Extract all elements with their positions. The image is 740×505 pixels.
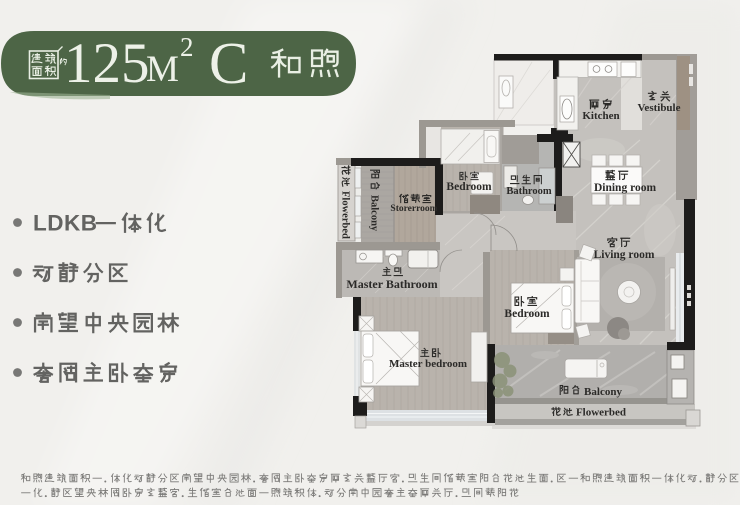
svg-text:Flowerbed: Flowerbed <box>340 191 351 239</box>
svg-text:Living room: Living room <box>594 249 655 261</box>
svg-text:Dining room: Dining room <box>594 182 657 194</box>
svg-text:Vestibule: Vestibule <box>638 102 681 114</box>
svg-text:Storerroom: Storerroom <box>390 204 437 214</box>
svg-text:LDKB: LDKB <box>33 211 98 236</box>
svg-text:Bedroom: Bedroom <box>504 308 550 320</box>
svg-text:C: C <box>209 30 248 96</box>
svg-text:Bathroom: Bathroom <box>506 186 552 197</box>
svg-text:Flowerbed: Flowerbed <box>576 407 626 419</box>
svg-text:Kitchen: Kitchen <box>582 110 619 122</box>
svg-text:Master Bathroom: Master Bathroom <box>346 277 437 291</box>
svg-text:Balcony: Balcony <box>584 386 622 398</box>
svg-text:M: M <box>146 49 179 90</box>
svg-text:2: 2 <box>180 32 194 62</box>
svg-text:Balcony: Balcony <box>369 195 380 232</box>
svg-text:125: 125 <box>64 32 150 95</box>
svg-text:Master bedroom: Master bedroom <box>389 358 467 370</box>
svg-text:Bedroom: Bedroom <box>446 181 492 193</box>
